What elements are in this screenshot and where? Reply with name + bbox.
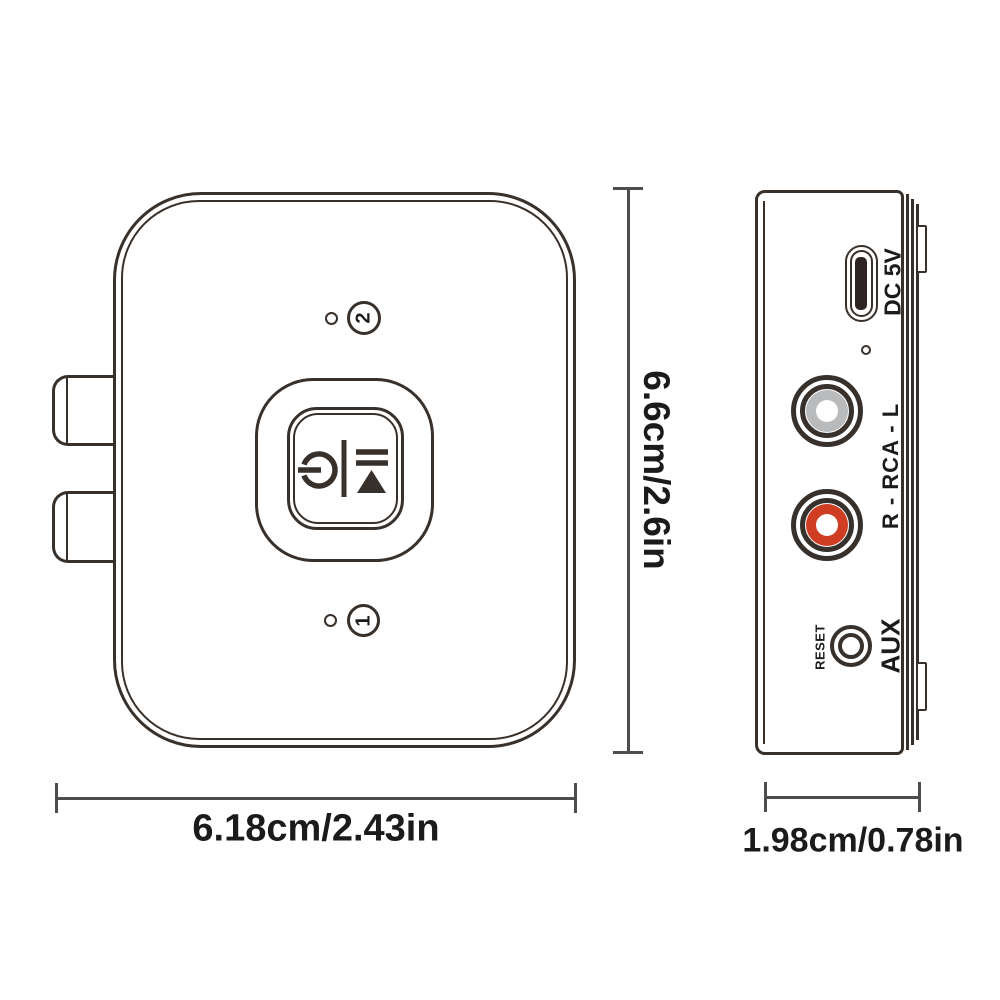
height-dimension-line [627, 188, 630, 753]
indicator-1-badge: 1 [347, 604, 380, 637]
side-clip-tab-bottom [916, 662, 927, 711]
usb-port-label: DC 5V [880, 248, 907, 316]
indicator-2-number: 2 [354, 312, 374, 323]
depth-dimension-line [765, 796, 920, 799]
usb-c-slot [855, 257, 867, 310]
power-next-track-icon [296, 420, 394, 516]
side-step-line-2 [911, 199, 914, 745]
led-dot-bottom [324, 614, 337, 627]
width-dimension-tick-right [574, 783, 577, 813]
aux-jack-inner-ring [838, 633, 864, 659]
width-dimension-tick-left [55, 783, 58, 813]
reset-label: RESET [813, 624, 828, 670]
depth-dimension-tick-right [918, 782, 921, 812]
height-dimension-label: 6.6cm/2.6in [635, 370, 677, 570]
aux-port-label: AUX [876, 619, 907, 674]
rca-channels-label: R - RCA - L [878, 403, 904, 529]
height-dimension-tick-bottom [613, 751, 643, 754]
product-dimension-diagram: 2 1 DC 5V R - RCA - L RESET [0, 0, 1000, 1000]
indicator-1-number: 1 [354, 615, 374, 626]
width-dimension-label: 6.18cm/2.43in [192, 808, 439, 851]
side-led-hole [861, 345, 871, 355]
height-dimension-tick-top [613, 187, 643, 190]
rca-stub-top [52, 375, 115, 446]
depth-dimension-tick-left [764, 782, 767, 812]
rca-stub-top-edge-line [66, 378, 68, 443]
depth-dimension-label: 1.98cm/0.78in [742, 822, 963, 861]
rca-stub-bottom-edge-line [66, 494, 68, 560]
rca-stub-bottom [52, 491, 115, 563]
rca-right-jack-center-hole [816, 514, 838, 536]
width-dimension-line [56, 797, 576, 800]
side-step-line-3 [916, 204, 919, 740]
side-clip-tab-top [916, 225, 927, 273]
rca-left-jack-center-hole [816, 400, 838, 422]
indicator-2-badge: 2 [347, 301, 381, 335]
led-dot-top [325, 312, 338, 325]
side-body-inner-edge-line [763, 201, 765, 744]
